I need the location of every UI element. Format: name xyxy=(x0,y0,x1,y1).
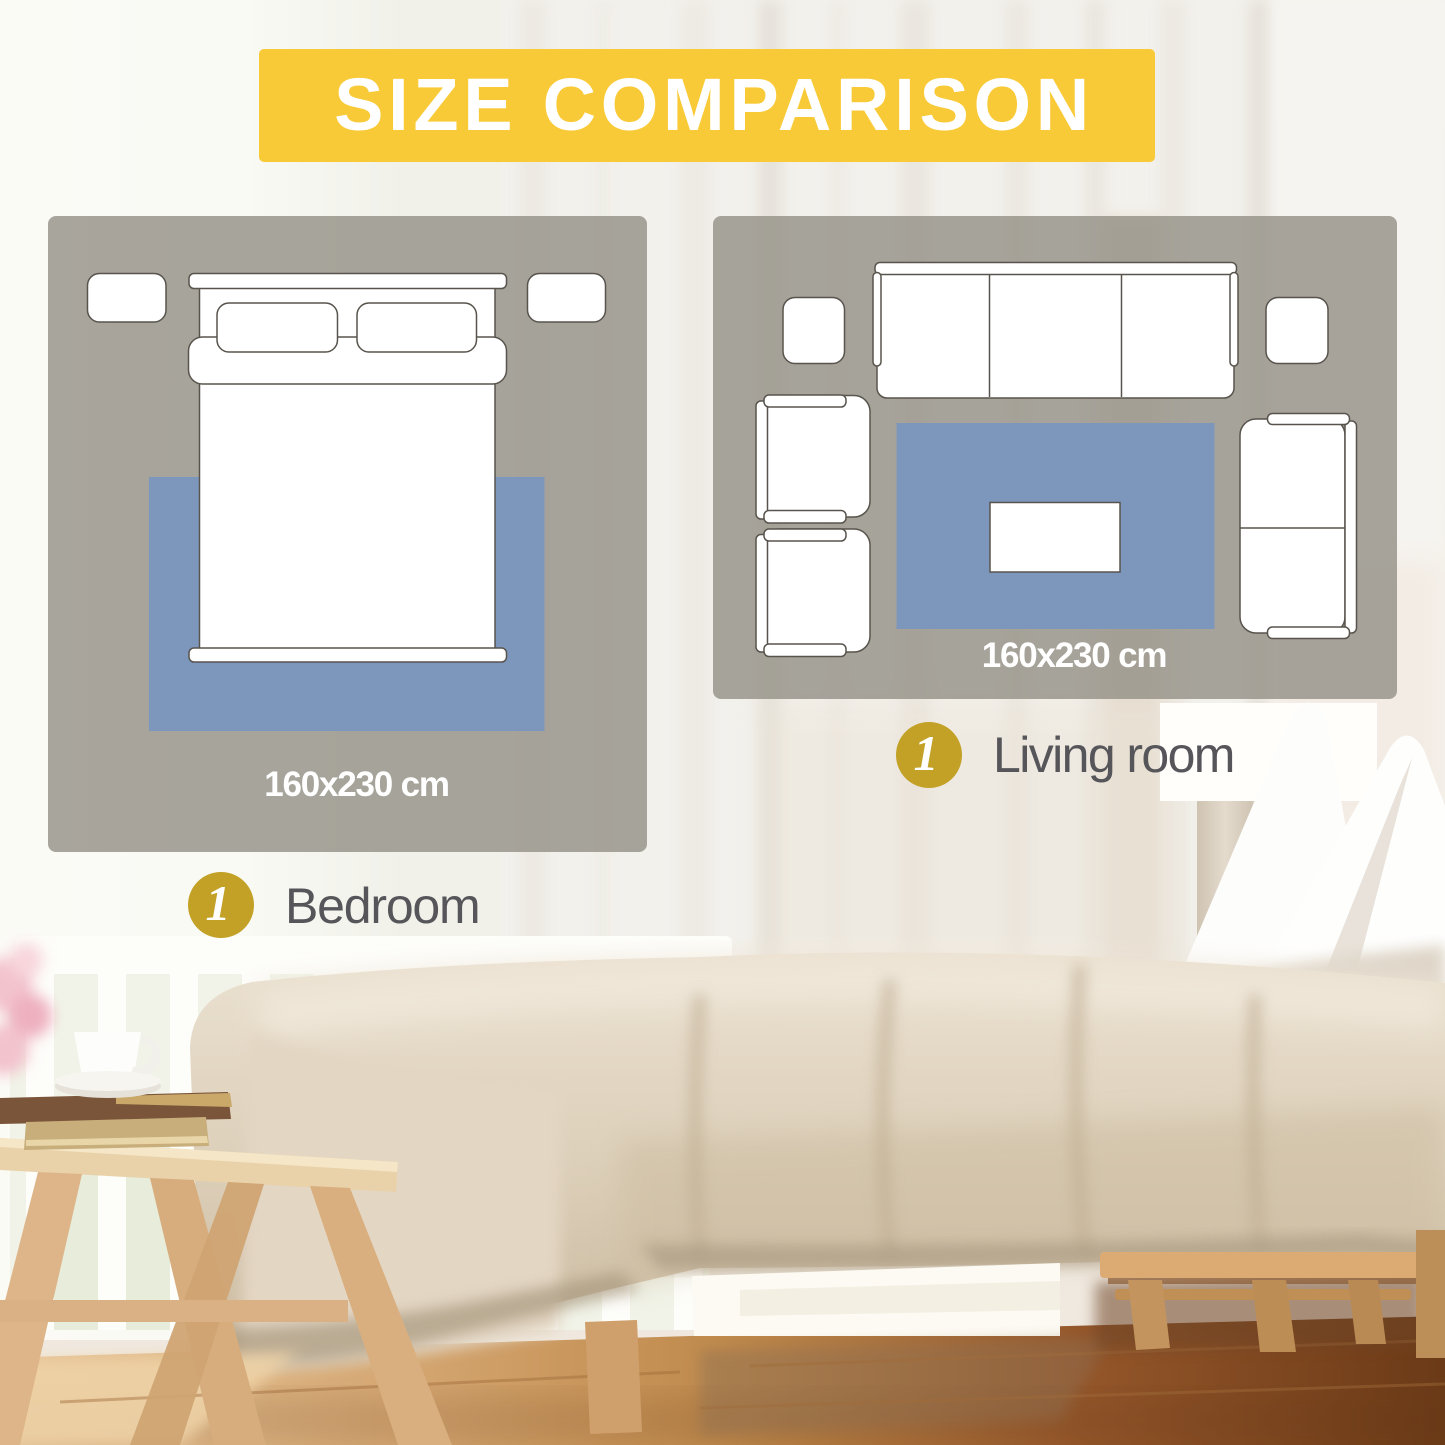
svg-text:160x230 cm: 160x230 cm xyxy=(264,765,449,804)
svg-text:160x230 cm: 160x230 cm xyxy=(982,636,1167,675)
